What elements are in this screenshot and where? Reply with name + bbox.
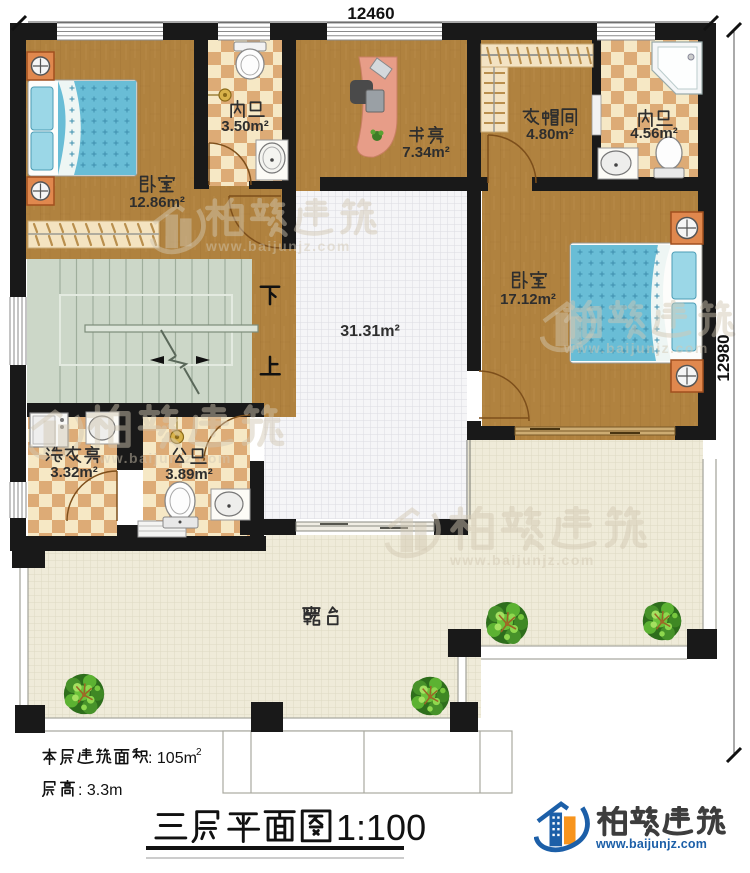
svg-text:1:100: 1:100: [336, 807, 426, 848]
svg-text:www.baijunjz.com: www.baijunjz.com: [449, 552, 595, 568]
svg-text:www.baijunjz.com: www.baijunjz.com: [595, 837, 707, 851]
svg-text:: 105m: : 105m: [148, 750, 197, 767]
svg-text:3.50m²: 3.50m²: [221, 118, 269, 135]
svg-text:7.34m²: 7.34m²: [402, 144, 450, 161]
svg-text:4.80m²: 4.80m²: [526, 126, 574, 143]
svg-text:www.baijunjz.com: www.baijunjz.com: [205, 238, 351, 254]
svg-text:12460: 12460: [347, 4, 394, 23]
svg-text:www.baijunjz.com: www.baijunjz.com: [563, 340, 709, 356]
svg-text:www.baijunjz.com: www.baijunjz.com: [86, 450, 232, 466]
svg-text:3.89m²: 3.89m²: [165, 466, 213, 483]
svg-text:31.31m²: 31.31m²: [340, 323, 400, 340]
svg-text:17.12m²: 17.12m²: [500, 291, 556, 308]
svg-text:2: 2: [196, 747, 202, 758]
svg-text:3.32m²: 3.32m²: [50, 464, 98, 481]
svg-text:12980: 12980: [714, 334, 733, 381]
svg-text:4.56m²: 4.56m²: [630, 125, 678, 142]
svg-text:12.86m²: 12.86m²: [129, 194, 185, 211]
svg-text:: 3.3m: : 3.3m: [78, 782, 122, 799]
